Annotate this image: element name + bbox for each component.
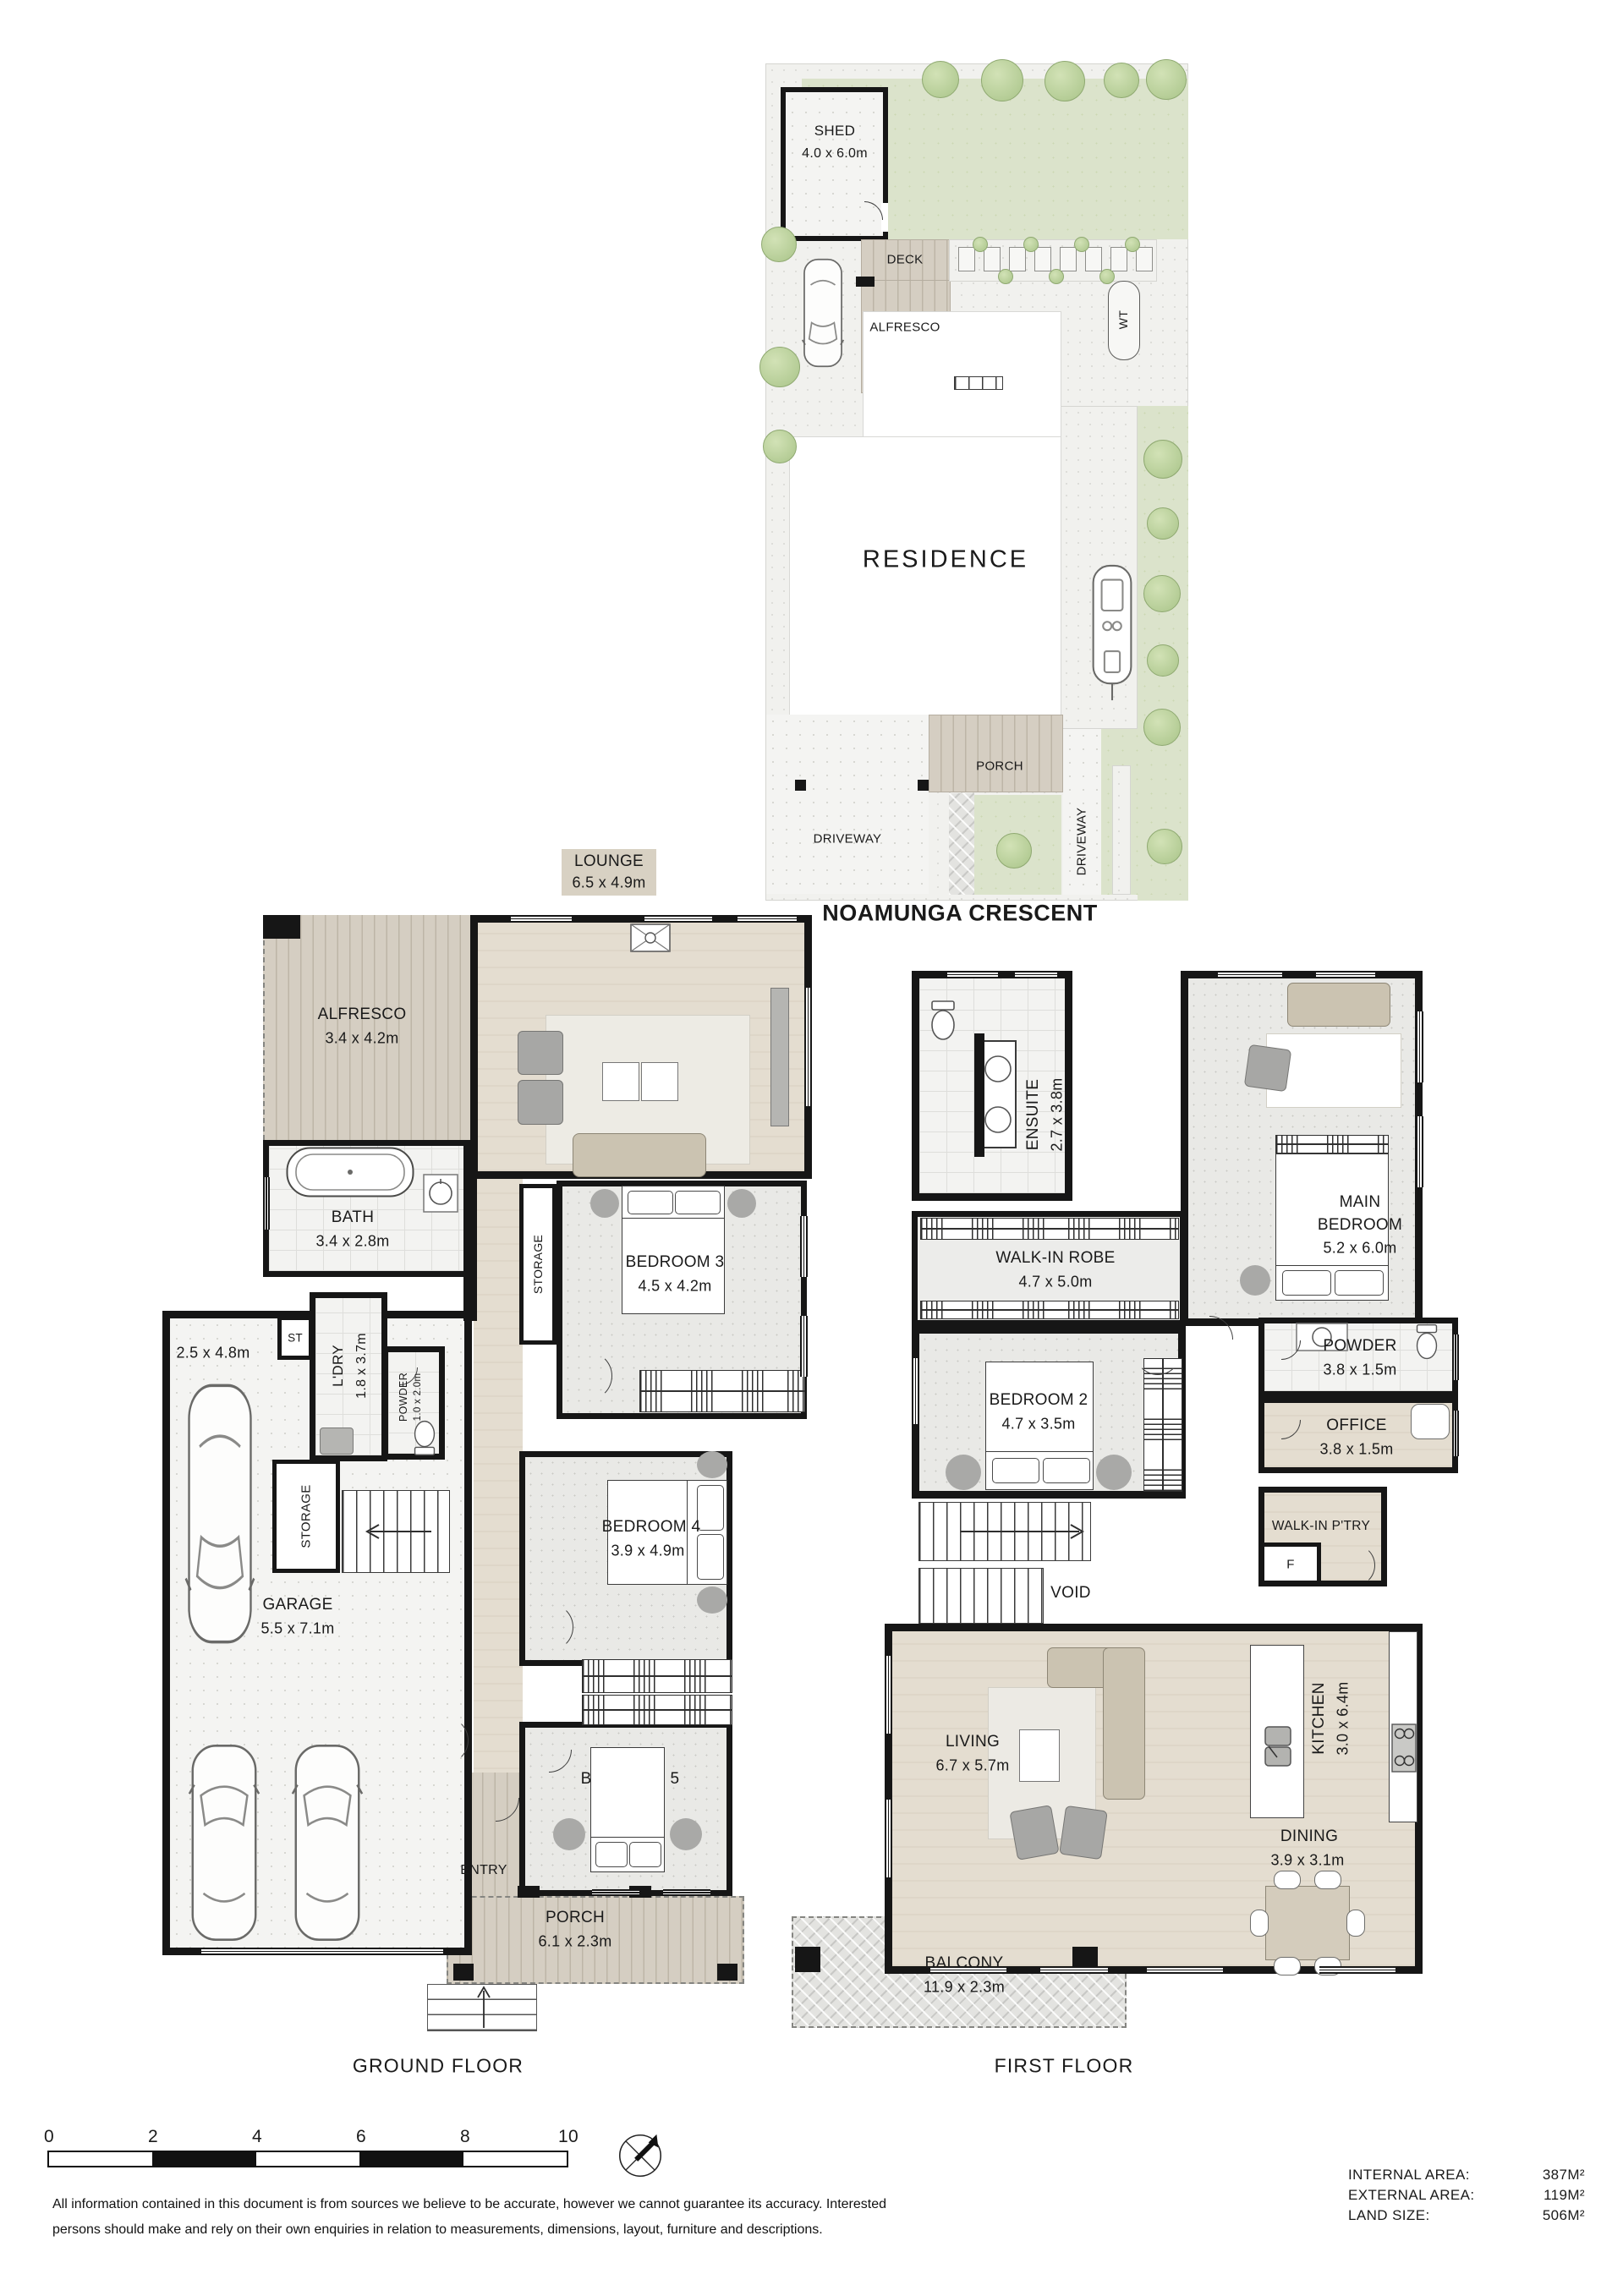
floorplan-page: SHED 4.0 x 6.0m DECK ALFRESCO WT RESIDEN… [0,0,1623,2296]
ceiling-fan-icon [630,923,671,952]
scale-segment [256,2152,359,2166]
gf-alfresco-label: ALFRESCO [318,1006,407,1024]
water-tank-label: WT [1116,310,1130,329]
tree-icon [1147,507,1179,540]
window [263,1177,270,1230]
window [1015,971,1057,978]
scale-tick-6: 6 [356,2127,366,2147]
car-icon [179,1378,260,1649]
site-porch-label: PORCH [976,759,1023,774]
ff-dining-dims: 3.9 x 3.1m [1270,1852,1344,1870]
gf-bedroom4-dims: 3.9 x 4.9m [611,1543,684,1560]
bedside-table [670,1818,702,1850]
wall [463,1140,477,1321]
gf-alfresco-dims: 3.4 x 4.2m [325,1030,398,1048]
toilet-icon [411,1419,438,1456]
tree-icon [1104,63,1139,98]
tree-icon [759,347,800,387]
ff-living-label: LIVING [946,1733,1000,1751]
shrub-icon [1125,237,1140,252]
residence-label: RESIDENCE [863,546,1028,574]
window [592,1889,639,1896]
disclaimer-line2: persons should make and rely on their ow… [52,2217,823,2243]
external-area-value: 119M² [1543,2185,1585,2206]
front-path [949,793,974,895]
bed-head-bench [1275,1135,1389,1153]
window [1147,1966,1223,1974]
gf-alfresco [263,915,472,1140]
pillow [629,1842,661,1867]
ff-balcony-label: BALCONY [925,1954,1004,1973]
window [885,1800,892,1877]
gf-garage-storage-label: STORAGE [299,1484,314,1548]
bedside-table [1096,1455,1132,1490]
ff-bedroom2-dims: 4.7 x 3.5m [1001,1416,1075,1433]
pier [717,1964,737,1981]
tree-icon [1147,829,1182,864]
pier [918,780,929,791]
kitchen-sink-icon [1264,1725,1292,1767]
shrub-icon [1049,269,1064,284]
bedside-table [946,1455,981,1490]
ff-void-label: VOID [1050,1584,1091,1603]
gf-hall-storage-label: STORAGE [531,1235,545,1294]
gf-bedroom3-label: BEDROOM 3 [626,1253,725,1272]
ff-main-dims: 5.2 x 6.0m [1323,1240,1396,1258]
car-icon [798,254,847,372]
ff-kitchen-dims: 3.0 x 6.4m [1335,1681,1352,1755]
scale-tick-10: 10 [558,2127,578,2147]
tree-icon [1143,440,1182,479]
shrub-icon [1074,237,1089,252]
shed-dims: 4.0 x 6.0m [802,146,868,162]
tree-icon [1143,709,1181,746]
bed-foldline [1275,1265,1389,1266]
shrub-icon [973,237,988,252]
window [1319,1966,1395,1974]
ff-pantry-label: WALK-IN P'TRY [1272,1519,1370,1534]
armchair [1244,1044,1291,1092]
armchair [518,1031,563,1075]
desk-chair [1411,1404,1450,1439]
door-arc [1135,1329,1181,1375]
first-floor-title: FIRST FLOOR [995,2055,1134,2078]
door-arc [421,1717,469,1764]
window [1416,1011,1423,1082]
gf-st-label: ST [288,1332,303,1345]
gf-bath-label: BATH [332,1208,374,1227]
pillow [675,1191,721,1214]
tree-icon [1147,644,1179,677]
planter-box [958,247,975,271]
ff-fridge-label: F [1286,1558,1294,1572]
shrub-icon [998,269,1013,284]
scale-segment [359,2152,463,2166]
driveway-side-label: DRIVEWAY [1075,808,1089,876]
ottoman [1059,1806,1108,1860]
gf-powder-dims: 1.0 x 2.0m [413,1373,423,1422]
scale-tick-2: 2 [148,2127,158,2147]
gf-entry-label: ENTRY [460,1863,507,1878]
robe [582,1659,732,1693]
ff-wir-label: WALK-IN ROBE [995,1249,1115,1268]
land-size-value: 506M² [1543,2206,1585,2226]
ff-main-label1: MAIN [1340,1193,1381,1212]
pillow [697,1485,724,1531]
ottoman [1009,1805,1059,1860]
driveway-label: DRIVEWAY [814,832,882,847]
door-arc [1333,1544,1375,1586]
internal-area-value: 387M² [1543,2165,1585,2185]
stairs-arrow-icon [956,1519,1091,1544]
window [1316,971,1375,978]
site-alfresco-label: ALFRESCO [869,321,940,335]
scale-segment [152,2152,255,2166]
pier [518,1886,540,1898]
basin-icon [423,1174,458,1213]
window [1218,971,1282,978]
pillow [1335,1270,1384,1296]
scale-tick-8: 8 [460,2127,470,2147]
ff-living-dims: 6.7 x 5.7m [935,1757,1009,1775]
land-size-label: LAND SIZE: [1348,2206,1430,2226]
planter-box [1060,247,1077,271]
ff-bedroom2-label: BEDROOM 2 [990,1391,1088,1410]
area-summary: INTERNAL AREA: 387M² EXTERNAL AREA: 119M… [1348,2165,1585,2226]
ff-powder-label: POWDER [1323,1337,1396,1356]
bedside-table [697,1451,727,1478]
sofa [573,1133,706,1177]
gf-garage-label: GARAGE [262,1596,332,1614]
tree-icon [981,59,1023,101]
bedside-table [1240,1265,1270,1296]
caravan-icon [1088,558,1137,712]
ff-office-dims: 3.8 x 1.5m [1319,1441,1393,1459]
site-residence [789,436,1061,731]
dining-chair [1250,1910,1269,1937]
internal-area-label: INTERNAL AREA: [1348,2165,1470,2185]
ff-kitchen-label: KITCHEN [1310,1682,1329,1755]
ff-ensuite-dims: 2.7 x 3.8m [1049,1077,1066,1151]
robe [920,1301,1179,1319]
window [1452,1411,1459,1456]
area-row: INTERNAL AREA: 387M² [1348,2165,1585,2185]
window [800,1316,808,1377]
wall [974,1033,984,1157]
scale-bar [47,2151,568,2167]
pier [795,1947,820,1972]
area-row: EXTERNAL AREA: 119M² [1348,2185,1585,2206]
dining-chair [1274,1871,1301,1889]
ff-office-label: OFFICE [1326,1417,1386,1435]
bedside-table [590,1189,619,1218]
ff-main-label2: BEDROOM [1318,1216,1402,1235]
planter-box [1085,247,1102,271]
pier [795,780,806,791]
planter-box [1110,247,1127,271]
garage-door [201,1948,443,1955]
tree-icon [1146,59,1187,100]
door-arc [526,1603,573,1651]
gf-powder-label: POWDER [398,1373,409,1422]
tree-icon [922,61,959,98]
gf-porch-label: PORCH [546,1909,605,1927]
lounge-label: LOUNGE [574,852,644,871]
car-icon [183,1740,266,1945]
window [800,1216,808,1277]
bedside-table [697,1586,727,1614]
window [947,971,998,978]
gf-laundry-dims: 1.8 x 3.7m [354,1333,370,1399]
laundry-sink [320,1427,354,1455]
pillow [992,1458,1039,1483]
robe [1143,1358,1182,1492]
tree-icon [761,227,797,262]
sofa [1287,983,1390,1027]
stairs-arrow-icon [355,1519,440,1544]
disclaimer-line1: All information contained in this docume… [52,2192,886,2217]
toilet-icon [929,1000,957,1042]
shrub-icon [1023,237,1039,252]
window [1452,1334,1459,1380]
coffee-table [602,1062,639,1101]
bed-foldline [985,1451,1094,1452]
tree-icon [996,833,1032,869]
robe [582,1695,732,1725]
door-arc [563,1351,612,1400]
scale-tick-0: 0 [44,2127,54,2147]
scale-tick-4: 4 [252,2127,262,2147]
gf-porch-dims: 6.1 x 2.3m [538,1933,611,1951]
shed-label: SHED [814,123,855,140]
toilet-icon [1414,1323,1439,1362]
armchair [518,1080,563,1125]
dining-chair [1346,1910,1365,1937]
window [644,915,712,923]
ff-balcony-dims: 11.9 x 2.3m [924,1979,1005,1997]
gf-bath-dims: 3.4 x 2.8m [315,1233,389,1251]
pier [453,1964,474,1981]
window [737,915,797,923]
gf-laundry-label: L'DRY [330,1345,347,1387]
compass-icon [614,2129,666,2182]
pillow [1282,1270,1331,1296]
ff-stairs-lower [918,1568,1044,1624]
window [804,988,812,1106]
scale-segment [463,2152,567,2166]
gf-bedroom4-label: BEDROOM 4 [602,1518,701,1537]
coffee-table [641,1062,678,1101]
ground-floor-title: GROUND FLOOR [353,2055,524,2078]
window [1416,1116,1423,1187]
robe [639,1370,805,1412]
coffee-table [1019,1729,1060,1782]
dining-chair [1274,1957,1301,1975]
car-icon [286,1740,369,1945]
area-row: LAND SIZE: 506M² [1348,2206,1585,2226]
shrub-icon [1099,269,1115,284]
planter-box [1009,247,1026,271]
bed-foldline [590,1837,665,1838]
window [885,1656,892,1734]
gf-garage-dims: 5.5 x 7.1m [260,1620,334,1638]
window [912,1358,919,1424]
wall-corner [263,915,300,939]
planter-box [1034,247,1051,271]
window [663,1889,710,1896]
bedside-table [727,1189,756,1218]
ff-dining-label: DINING [1280,1827,1338,1846]
site-driveway [766,715,929,894]
gf-carspace-dims: 2.5 x 4.8m [176,1345,249,1362]
l-sofa-side [1103,1647,1145,1800]
dining-table [1265,1886,1350,1960]
dining-chair [1314,1871,1341,1889]
site-alfresco-wall [856,277,875,287]
cooktop-icon [1391,1723,1417,1773]
tree-icon [763,430,797,463]
planter-box [984,247,1001,271]
ff-ensuite-label: ENSUITE [1024,1079,1043,1150]
site-porch [929,715,1063,792]
gf-bedroom3-dims: 4.5 x 4.2m [638,1278,711,1296]
ff-powder-dims: 3.8 x 1.5m [1323,1362,1396,1379]
pillow [628,1191,673,1214]
tree-icon [1045,61,1085,101]
scale-segment [49,2152,152,2166]
deck-label: DECK [887,253,924,267]
window [1040,1966,1108,1974]
ff-wir-dims: 4.7 x 5.0m [1018,1274,1092,1291]
verge-path [1112,765,1131,895]
tree-icon [1143,575,1181,612]
bed-foldline [622,1218,725,1219]
planter-box [1136,247,1153,271]
double-vanity-icon [979,1040,1017,1148]
lounge-dims: 6.5 x 4.9m [572,874,645,892]
street-label: NOAMUNGA CRESCENT [822,901,1098,927]
residence-steps [954,376,1003,390]
entry-arrow-icon [474,1984,494,2031]
external-area-label: EXTERNAL AREA: [1348,2185,1475,2206]
bathtub-icon [286,1147,414,1197]
pillow [595,1842,628,1867]
tv-unit [770,988,789,1126]
pillow [697,1534,724,1580]
robe [920,1218,1179,1240]
bedside-table [553,1818,585,1850]
pillow [1043,1458,1090,1483]
window [511,915,572,923]
